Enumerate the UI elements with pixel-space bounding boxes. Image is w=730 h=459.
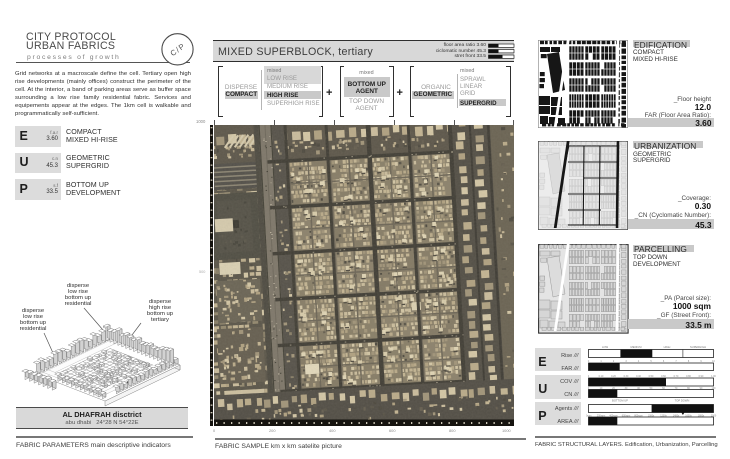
svg-text:0.80: 0.80	[686, 375, 691, 378]
svg-text:0.40: 0.40	[636, 375, 641, 378]
svg-text:10: 10	[712, 360, 715, 363]
svg-text:0.50: 0.50	[649, 375, 654, 378]
svg-text:0: 0	[588, 360, 590, 363]
svg-text:1: 1	[600, 360, 602, 363]
svg-text:4: 4	[638, 360, 640, 363]
svg-text:6: 6	[663, 360, 665, 363]
svg-text:SUPERHIGH: SUPERHIGH	[690, 345, 706, 349]
svg-text:9: 9	[700, 360, 702, 363]
svg-text:0.60: 0.60	[661, 375, 666, 378]
svg-text:0.70: 0.70	[674, 375, 679, 378]
svg-text:0: 0	[588, 375, 590, 378]
svg-text:7: 7	[675, 360, 677, 363]
svg-text:LOW: LOW	[602, 345, 609, 349]
svg-text:8: 8	[688, 360, 690, 363]
svg-text:0.10: 0.10	[599, 375, 604, 378]
svg-text:3: 3	[625, 360, 627, 363]
svg-text:BOTTOM UP: BOTTOM UP	[612, 399, 628, 403]
svg-text:2: 2	[613, 360, 615, 363]
svg-text:MEDIUM: MEDIUM	[631, 345, 643, 349]
svg-text:HIGH: HIGH	[664, 345, 671, 349]
svg-text:0.30: 0.30	[624, 375, 629, 378]
svg-text:0.20: 0.20	[611, 375, 616, 378]
svg-text:0.90: 0.90	[699, 375, 704, 378]
svg-text:5: 5	[650, 360, 652, 363]
svg-text:1.00: 1.00	[711, 375, 716, 378]
svg-text:TOP DOWN: TOP DOWN	[675, 399, 690, 403]
